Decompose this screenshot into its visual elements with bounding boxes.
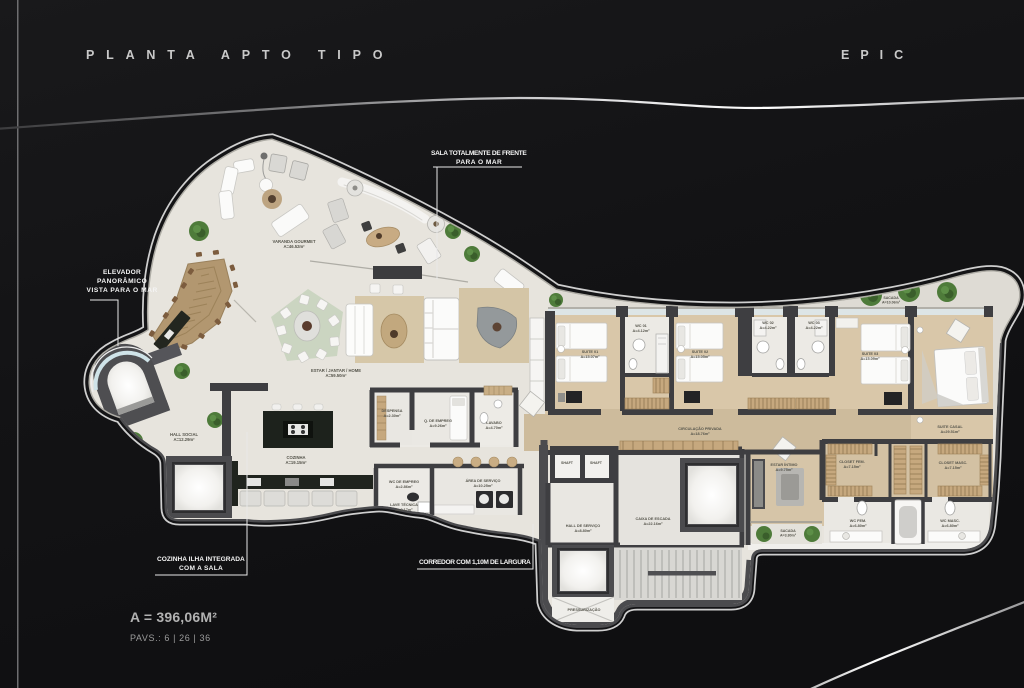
svg-text:A=59.50m²: A=59.50m² <box>325 373 347 378</box>
svg-text:A=10.25m²: A=10.25m² <box>473 484 493 488</box>
svg-text:PLANTA APTO TIPO: PLANTA APTO TIPO <box>86 48 394 62</box>
svg-text:DESPENSA: DESPENSA <box>382 409 403 413</box>
svg-text:SUITE 03: SUITE 03 <box>862 352 878 356</box>
svg-text:CIRCULAÇÃO PRIVADA: CIRCULAÇÃO PRIVADA <box>678 426 722 431</box>
svg-text:PRESSURIZAÇÃO: PRESSURIZAÇÃO <box>568 607 601 612</box>
svg-text:WC FEM.: WC FEM. <box>850 519 866 523</box>
svg-text:A=10.06m²: A=10.06m² <box>882 301 901 305</box>
svg-text:CORREDOR COM 1,10M DE LARGURA: CORREDOR COM 1,10M DE LARGURA <box>419 559 531 566</box>
svg-text:HALL DE SERVIÇO: HALL DE SERVIÇO <box>566 524 601 528</box>
svg-text:A=7.15m²: A=7.15m² <box>945 466 963 470</box>
svg-text:A=9.26m²: A=9.26m² <box>430 424 448 428</box>
svg-text:PARA O MAR: PARA O MAR <box>456 159 502 166</box>
svg-text:ÁREA DE SERVIÇO: ÁREA DE SERVIÇO <box>465 478 500 483</box>
svg-text:WC 01: WC 01 <box>635 324 647 328</box>
svg-text:PAVS.: 6 | 26 | 36: PAVS.: 6 | 26 | 36 <box>130 633 211 643</box>
svg-text:A=7.15m²: A=7.15m² <box>844 465 862 469</box>
svg-text:WC 02: WC 02 <box>762 321 774 325</box>
svg-text:VISTA PARA O MAR: VISTA PARA O MAR <box>87 287 158 294</box>
svg-text:SALA TOTALMENTE DE FRENTE: SALA TOTALMENTE DE FRENTE <box>431 150 527 157</box>
svg-text:PANORÂMICO: PANORÂMICO <box>97 276 147 285</box>
svg-text:CLOSET MASC.: CLOSET MASC. <box>939 461 968 465</box>
svg-text:A=46.52m²: A=46.52m² <box>283 244 305 249</box>
svg-text:LAVABO: LAVABO <box>486 421 502 425</box>
svg-text:A=19.15m²: A=19.15m² <box>285 460 307 465</box>
svg-text:COM A SALA: COM A SALA <box>179 565 223 572</box>
svg-text:LAVE TÉCNICA: LAVE TÉCNICA <box>390 502 418 507</box>
svg-text:A=15.09m²: A=15.09m² <box>860 357 880 361</box>
svg-text:SUITE 01: SUITE 01 <box>582 350 598 354</box>
svg-text:ELEVADOR: ELEVADOR <box>103 269 141 276</box>
svg-text:A=4.70m²: A=4.70m² <box>486 426 504 430</box>
svg-text:A=29.51m²: A=29.51m² <box>940 430 960 434</box>
svg-text:WC DE EMPREG: WC DE EMPREG <box>389 480 419 484</box>
svg-text:SUITE CASAL: SUITE CASAL <box>937 425 963 429</box>
svg-text:Q. DE EMPREG: Q. DE EMPREG <box>424 419 452 423</box>
svg-text:ESTAR ÍNTIMO: ESTAR ÍNTIMO <box>771 462 798 467</box>
svg-text:A=6.80m²: A=6.80m² <box>942 524 960 528</box>
svg-text:EPIC: EPIC <box>841 48 914 62</box>
svg-text:A=18.76m²: A=18.76m² <box>690 432 710 436</box>
svg-text:A=3.80m²: A=3.80m² <box>780 534 797 538</box>
svg-text:A=2.86m²: A=2.86m² <box>396 485 414 489</box>
svg-text:A=6.80m²: A=6.80m² <box>850 524 868 528</box>
svg-text:A=15.05m²: A=15.05m² <box>690 355 710 359</box>
svg-text:A=9.75m²: A=9.75m² <box>776 468 794 472</box>
svg-text:SHAFT: SHAFT <box>561 461 574 465</box>
svg-text:SUITE 02: SUITE 02 <box>692 350 708 354</box>
svg-text:A=15.07m²: A=15.07m² <box>580 355 600 359</box>
svg-text:A = 396,06M²: A = 396,06M² <box>130 609 217 625</box>
svg-text:WC 03: WC 03 <box>808 321 820 325</box>
svg-text:A=2.17m²: A=2.17m² <box>396 508 414 512</box>
svg-text:A=4.12m²: A=4.12m² <box>633 329 651 333</box>
svg-text:COZINHA ILHA INTEGRADA: COZINHA ILHA INTEGRADA <box>157 556 245 563</box>
svg-text:CLOSET FEM.: CLOSET FEM. <box>839 460 865 464</box>
svg-text:A=4.22m²: A=4.22m² <box>760 326 778 330</box>
svg-text:SACADA: SACADA <box>780 529 796 533</box>
svg-text:WC MASC.: WC MASC. <box>940 519 960 523</box>
svg-text:A=12.29m²: A=12.29m² <box>173 437 195 442</box>
svg-text:A=22.16m²: A=22.16m² <box>643 522 663 526</box>
svg-text:SHAFT: SHAFT <box>590 461 603 465</box>
svg-text:SACADA: SACADA <box>883 296 899 300</box>
svg-text:A=8.80m²: A=8.80m² <box>575 529 593 533</box>
svg-text:CAIXA DE ESCADA: CAIXA DE ESCADA <box>635 517 670 521</box>
svg-text:A=2.30m²: A=2.30m² <box>384 414 402 418</box>
svg-text:A=4.22m²: A=4.22m² <box>806 326 824 330</box>
